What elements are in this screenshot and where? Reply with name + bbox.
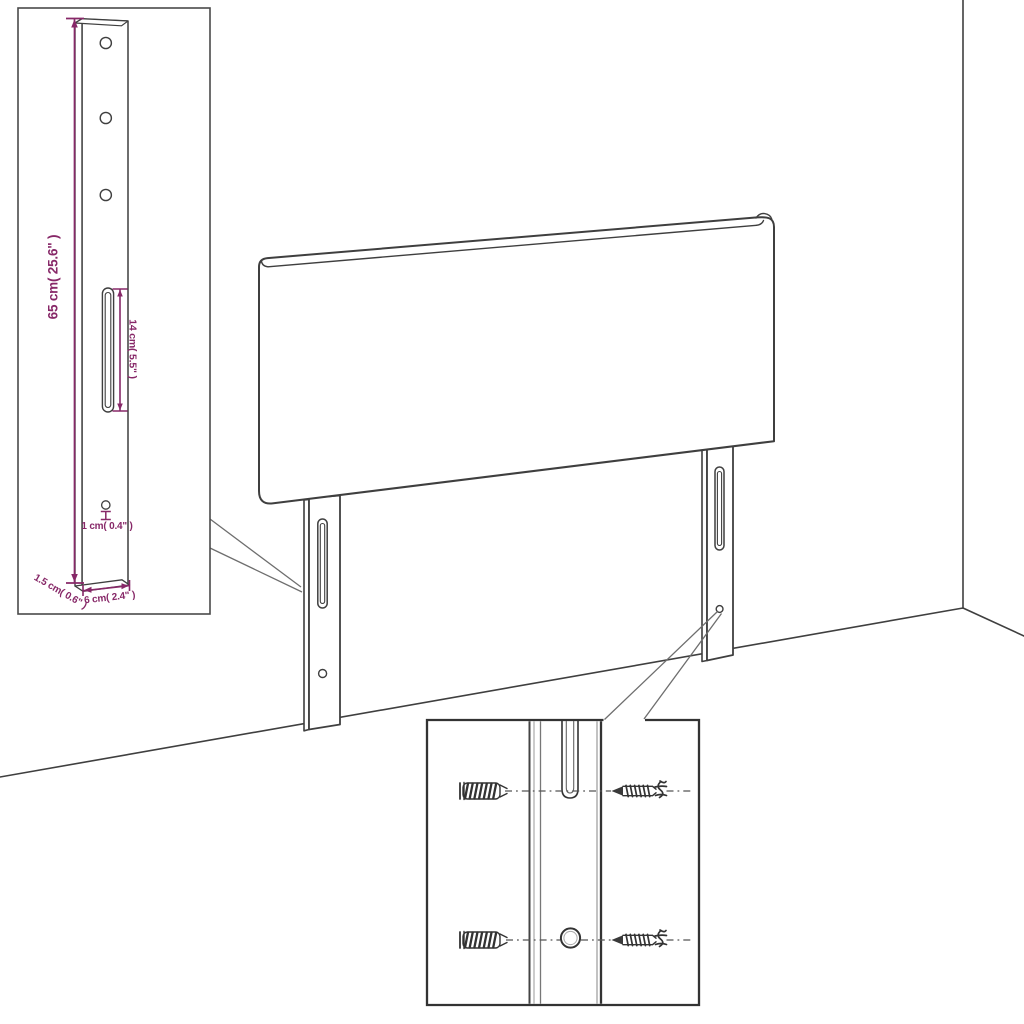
inset-leg-slot <box>102 288 113 412</box>
inset-leader-line-lower <box>210 548 302 592</box>
detail-inset-hardware <box>427 720 699 1005</box>
inset-leg-hole-2 <box>100 112 111 123</box>
inset-leg-side-face <box>75 19 82 590</box>
floor-line-right <box>963 608 1024 636</box>
assembly-diagram-canvas: 65 cm( 25.6" ) 14 cm( 5.5" ) 1 cm( 0.4" … <box>0 0 1024 1024</box>
detail-inset-leg: 65 cm( 25.6" ) 14 cm( 5.5" ) 1 cm( 0.4" … <box>18 8 210 614</box>
dimension-label-hole-diameter: 1 cm( 0.4" ) <box>81 521 132 532</box>
hardware-leader-line-left <box>605 612 718 720</box>
inset-hardware-box <box>427 720 699 1005</box>
left-leg-screw-hole <box>319 670 327 678</box>
left-leg-slot <box>318 519 327 608</box>
headboard-left-leg <box>304 496 340 731</box>
dimension-label-leg-height: 65 cm( 25.6" ) <box>46 235 61 320</box>
headboard-right-leg <box>702 443 733 662</box>
hardware-leader-line-right <box>644 614 722 720</box>
inset-leg-hole-1 <box>100 37 111 48</box>
inset-leg-bottom-hole <box>102 501 110 509</box>
inset-leg-hole-3 <box>100 189 111 200</box>
inset-leader-line-upper <box>210 519 301 587</box>
panel-outline <box>259 217 774 503</box>
dimension-label-slot-length: 14 cm( 5.5" ) <box>127 319 139 379</box>
headboard-panel <box>259 213 774 503</box>
headboard-assembly-diagram: 65 cm( 25.6" ) 14 cm( 5.5" ) 1 cm( 0.4" … <box>0 0 1024 1024</box>
right-leg-slot <box>715 467 724 550</box>
